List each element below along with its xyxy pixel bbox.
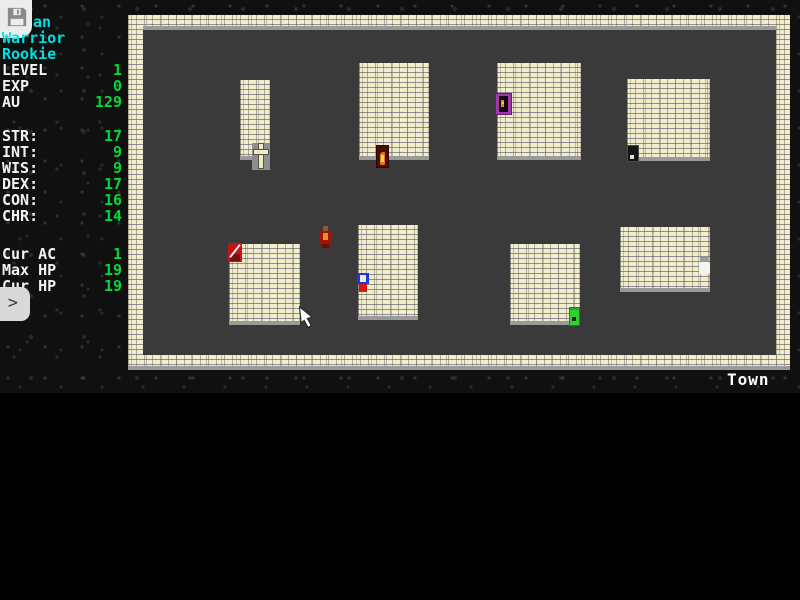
cross-marker[interactable] xyxy=(252,143,270,170)
chevron-right-icon: > xyxy=(8,293,18,313)
stat-label: AU xyxy=(2,94,20,110)
stat-value: 17 xyxy=(104,128,122,144)
building xyxy=(627,79,710,161)
stat-value: 129 xyxy=(95,94,122,110)
stat-label: CON: xyxy=(2,192,38,208)
progress-stats: LEVEL1EXP0AU129 xyxy=(0,62,128,110)
game-viewport: Town an Warrior Rookie LEVEL1EXP0AU129 S… xyxy=(0,0,800,393)
stat-label: INT: xyxy=(2,144,38,160)
stat-label: CHR: xyxy=(2,208,38,224)
stat-value: 0 xyxy=(113,78,122,94)
stat-value: 19 xyxy=(104,278,122,294)
stat-row: AU129 xyxy=(0,94,128,110)
character-name: an xyxy=(33,14,51,30)
npc-imp[interactable] xyxy=(319,226,332,248)
stat-label: DEX: xyxy=(2,176,38,192)
stat-value: 1 xyxy=(113,62,122,78)
stat-value: 9 xyxy=(113,160,122,176)
stat-label: EXP xyxy=(2,78,29,94)
stat-label: LEVEL xyxy=(2,62,47,78)
stat-label: Max HP xyxy=(2,262,56,278)
town-wall-left xyxy=(128,15,143,370)
stat-value: 19 xyxy=(104,262,122,278)
stat-row: INT:9 xyxy=(0,144,128,160)
town-wall-right xyxy=(776,15,790,370)
stat-label: Cur AC xyxy=(2,246,56,262)
sidebar: an Warrior Rookie LEVEL1EXP0AU129 STR:17… xyxy=(0,0,128,393)
area-label: Town xyxy=(727,370,770,389)
building xyxy=(359,63,429,160)
door-purple[interactable] xyxy=(495,93,512,115)
stat-label: STR: xyxy=(2,128,38,144)
character-rank: Rookie xyxy=(2,46,56,62)
character-class: Warrior xyxy=(2,30,65,46)
door-flame[interactable] xyxy=(376,145,389,168)
stat-value: 14 xyxy=(104,208,122,224)
town-wall-top xyxy=(128,15,790,30)
stat-value: 1 xyxy=(113,246,122,262)
stat-label: WIS: xyxy=(2,160,38,176)
building xyxy=(620,227,710,292)
stat-row: Max HP19 xyxy=(0,262,128,278)
player-blue[interactable] xyxy=(357,271,369,293)
stat-row: LEVEL1 xyxy=(0,62,128,78)
stat-value: 9 xyxy=(113,144,122,160)
stat-row: STR:17 xyxy=(0,128,128,144)
stat-row: CHR:14 xyxy=(0,208,128,224)
expand-sidebar-button[interactable]: > xyxy=(0,287,30,321)
mouse-cursor xyxy=(299,305,314,329)
stat-value: 16 xyxy=(104,192,122,208)
flag-red[interactable] xyxy=(228,243,242,262)
screen: Town an Warrior Rookie LEVEL1EXP0AU129 S… xyxy=(0,0,800,600)
stat-row: Cur AC1 xyxy=(0,246,128,262)
stat-row: EXP0 xyxy=(0,78,128,94)
stat-row: WIS:9 xyxy=(0,160,128,176)
npc-white[interactable] xyxy=(698,257,711,274)
door-black[interactable] xyxy=(627,145,639,162)
attribute-stats: STR:17INT:9WIS:9DEX:17CON:16CHR:14 xyxy=(0,128,128,224)
floppy-disk-icon xyxy=(6,6,28,28)
stat-row: CON:16 xyxy=(0,192,128,208)
door-green[interactable] xyxy=(569,307,580,326)
town-wall-bottom xyxy=(128,355,790,370)
stat-row: DEX:17 xyxy=(0,176,128,192)
stat-value: 17 xyxy=(104,176,122,192)
